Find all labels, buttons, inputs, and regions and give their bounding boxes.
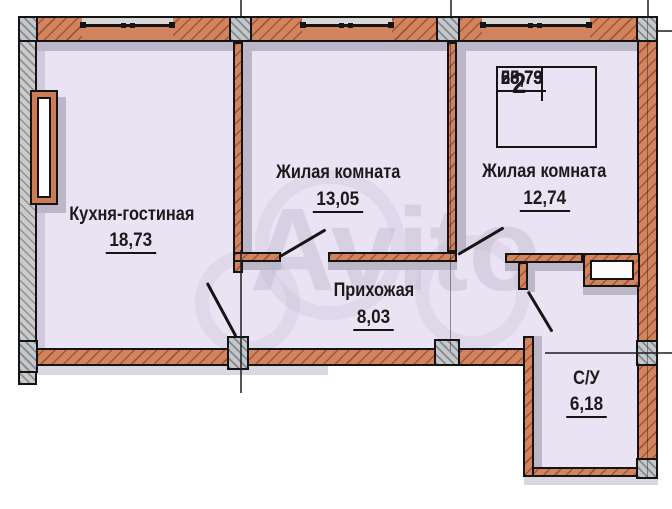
wall-shadow [18, 366, 328, 375]
window-mark [388, 22, 394, 28]
window-lintel [482, 16, 590, 24]
window-mark [537, 23, 542, 28]
room-area-kitchen: 18,73 [21, 230, 241, 254]
wall-shadow [36, 42, 638, 51]
axis-line [240, 250, 242, 393]
ventilation-shaft [590, 260, 634, 280]
window-mark [121, 23, 126, 28]
wall-shadow [583, 287, 640, 295]
room-area-living2: 12,74 [435, 188, 655, 212]
partition-bath-stub [518, 262, 528, 290]
wall-shadow [328, 262, 457, 270]
column [229, 16, 252, 42]
window-niche-left [30, 90, 58, 205]
axis-line [240, 0, 242, 16]
window-mark [339, 23, 344, 28]
column [18, 340, 38, 373]
column [227, 336, 249, 370]
room-area-living1: 13,05 [228, 189, 448, 213]
area-row: 60,73 [498, 68, 546, 90]
window-mark [169, 22, 175, 28]
window-mark [80, 22, 86, 28]
room-label-hall: Прихожая [264, 280, 484, 301]
room-label-bathroom: С/У [476, 368, 672, 389]
room-area-bathroom: 6,18 [476, 394, 672, 418]
column [434, 339, 460, 366]
partition-hall-b [328, 252, 457, 262]
wall-shadow [243, 51, 252, 262]
floor-plan: Avito [0, 0, 672, 509]
window-living1 [302, 16, 392, 42]
partition-living1-living2 [447, 42, 457, 252]
window-mark [348, 23, 353, 28]
window-sill [82, 27, 173, 40]
wall-shadow [505, 263, 583, 271]
window-lintel [302, 16, 392, 24]
window-living2 [482, 16, 590, 42]
axis-line [647, 0, 649, 16]
apartment-info-table: 2 25,79 58,73 60,73 [496, 66, 597, 148]
axis-line [545, 352, 672, 354]
window-mark [586, 22, 592, 28]
wall-shadow [58, 97, 66, 213]
window-sill [302, 27, 392, 40]
window-mark [130, 23, 135, 28]
column [436, 16, 460, 42]
room-label-kitchen: Кухня-гостиная [22, 204, 242, 225]
window-kitchen [82, 16, 173, 42]
wall-shadow [457, 51, 466, 252]
room-label-living2: Жилая комната [434, 161, 654, 182]
window-lintel [82, 16, 173, 24]
room-label-living1: Жилая комната [228, 162, 448, 183]
window-mark [528, 23, 533, 28]
window-sill [482, 27, 590, 40]
partition-bath-top [505, 253, 583, 263]
window-mark [300, 22, 306, 28]
axis-line [658, 30, 672, 32]
axis-line [450, 0, 452, 16]
window-mark [480, 22, 486, 28]
room-area-hall: 8,03 [263, 307, 483, 331]
column [18, 16, 38, 42]
wall-shadow [528, 263, 535, 292]
